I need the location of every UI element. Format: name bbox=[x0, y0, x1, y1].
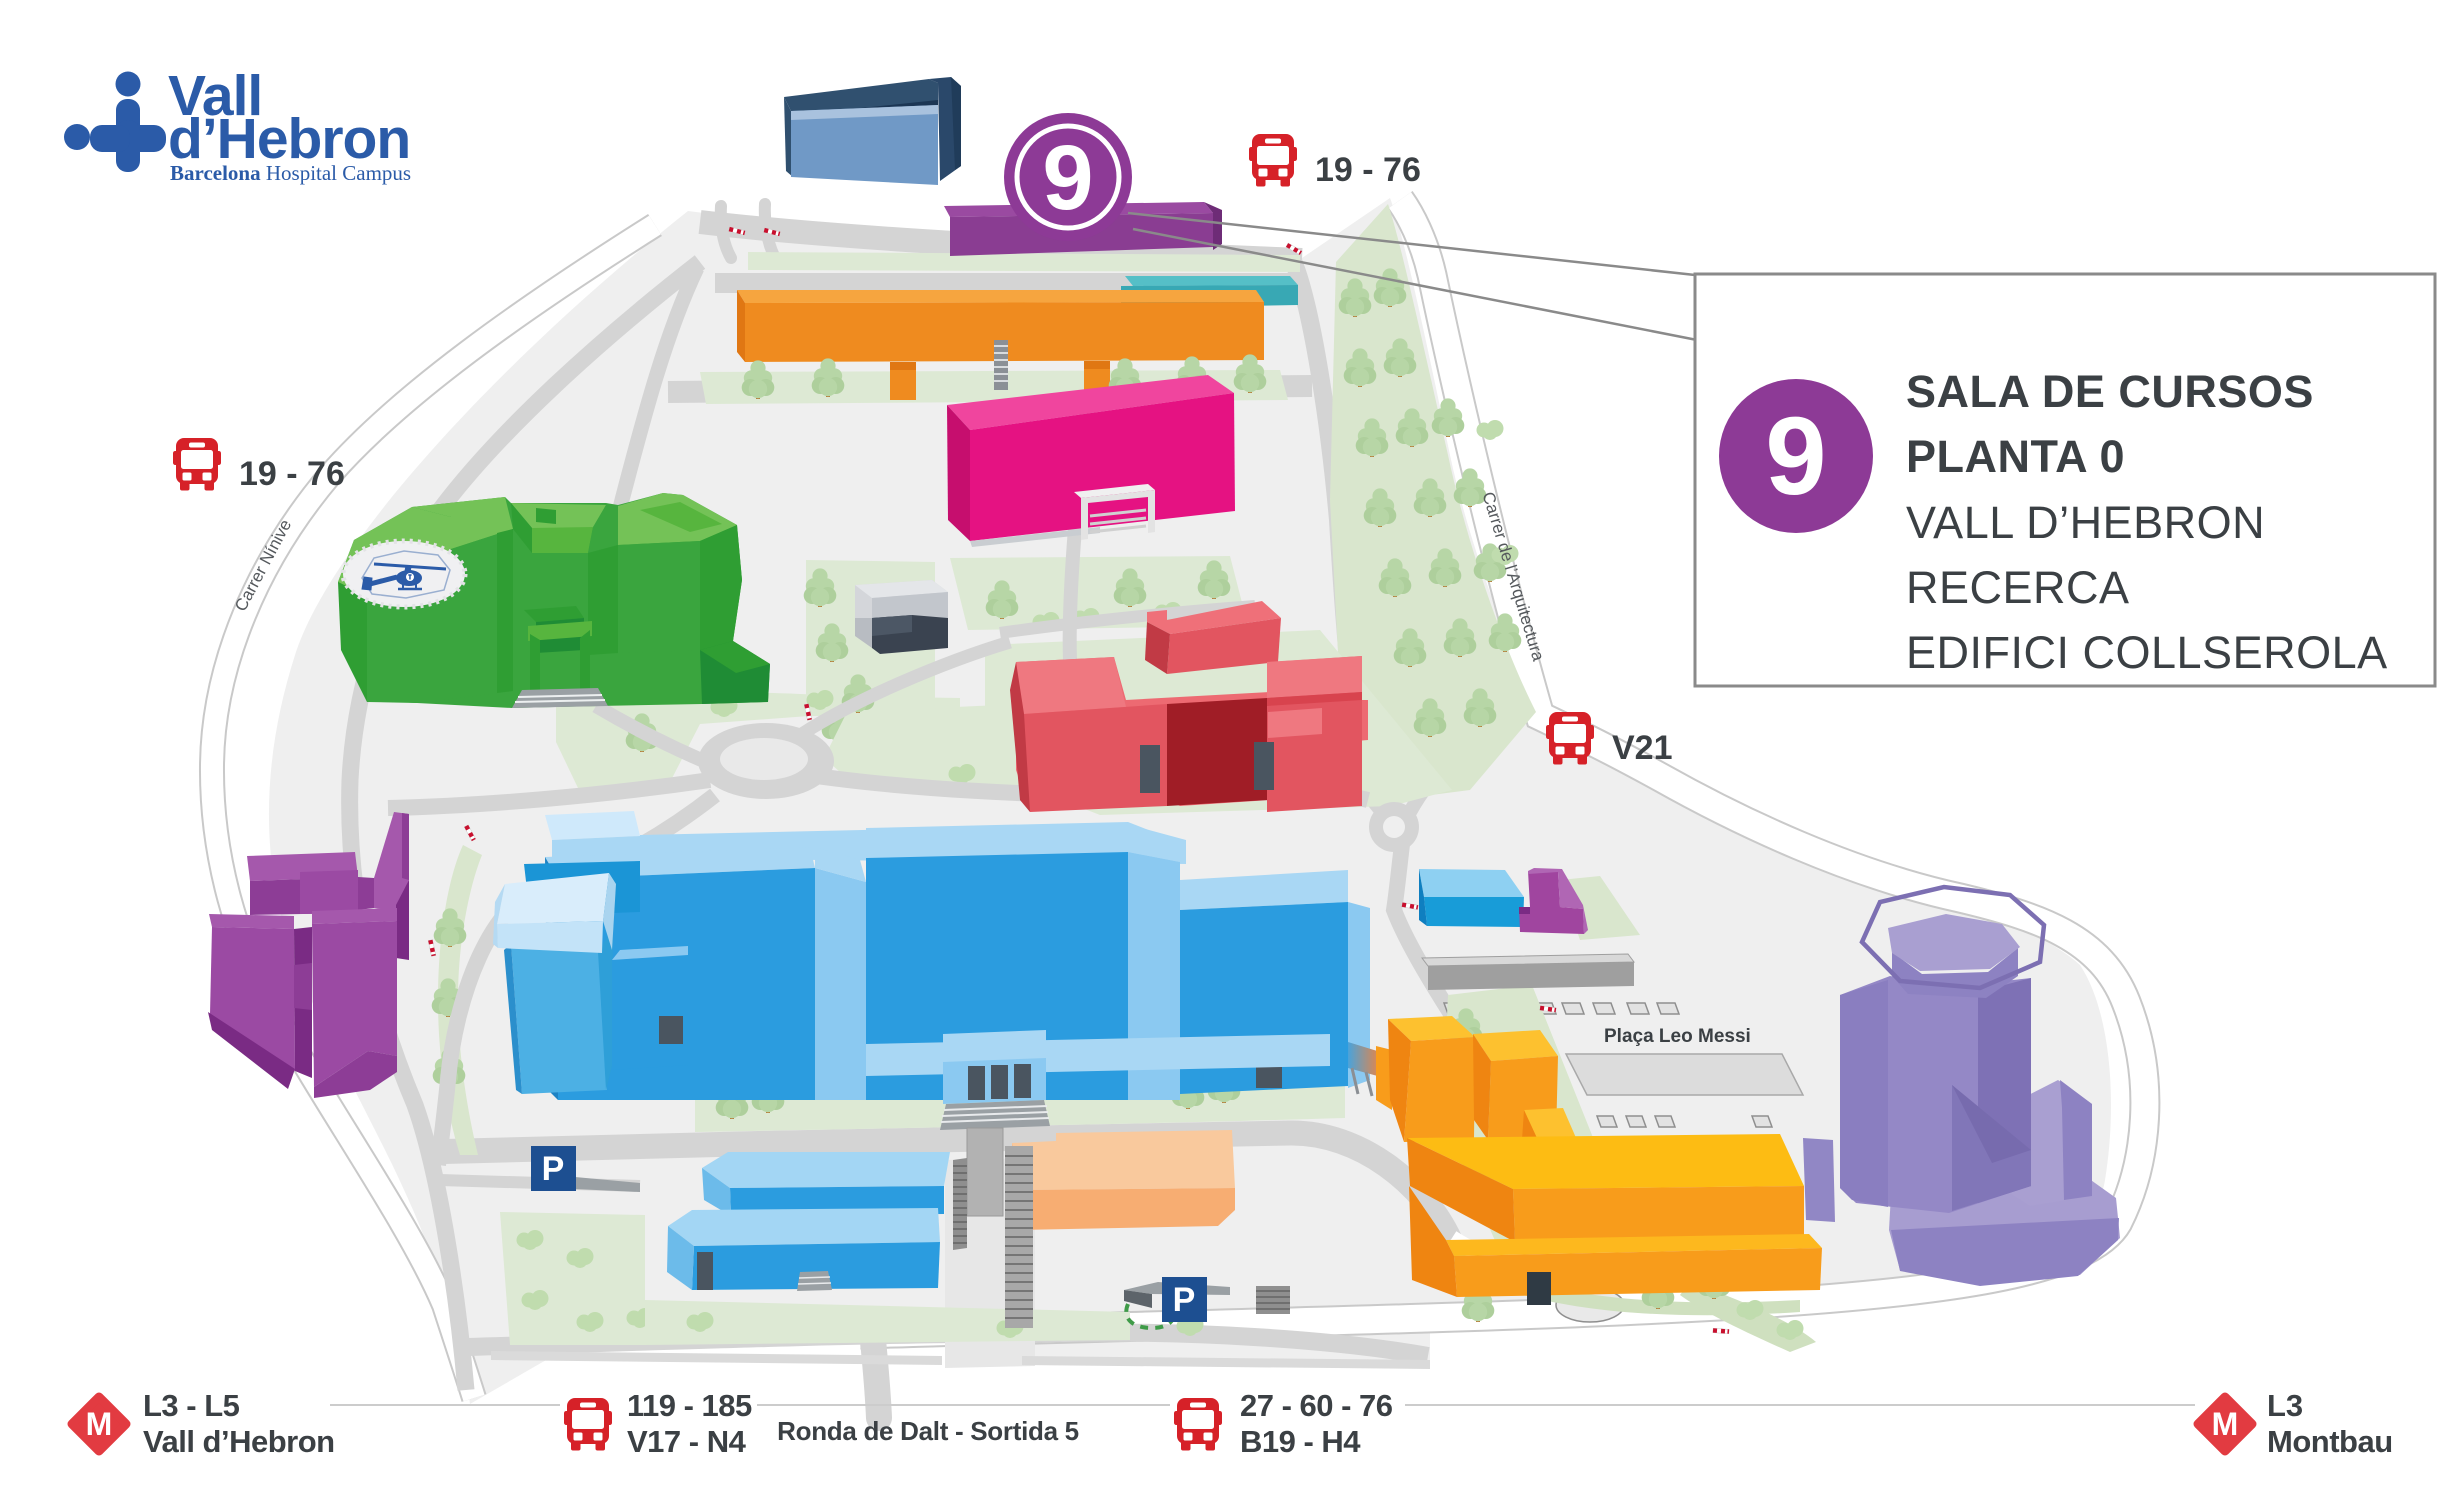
svg-text:V17 - N4: V17 - N4 bbox=[627, 1424, 747, 1459]
svg-text:SALA DE CURSOS: SALA DE CURSOS bbox=[1906, 366, 2314, 417]
svg-text:19 - 76: 19 - 76 bbox=[239, 455, 345, 493]
svg-text:L3: L3 bbox=[2267, 1388, 2303, 1423]
svg-text:B19 - H4: B19 - H4 bbox=[1240, 1424, 1361, 1459]
svg-text:L3 - L5: L3 - L5 bbox=[143, 1388, 240, 1423]
svg-text:RECERCA: RECERCA bbox=[1906, 562, 2130, 613]
svg-text:27 - 60 - 76: 27 - 60 - 76 bbox=[1240, 1388, 1393, 1423]
svg-text:V21: V21 bbox=[1612, 729, 1673, 767]
svg-text:Plaça Leo Messi: Plaça Leo Messi bbox=[1604, 1026, 1751, 1047]
svg-text:Vall d’Hebron: Vall d’Hebron bbox=[143, 1424, 335, 1459]
svg-text:Barcelona Hospital Campus: Barcelona Hospital Campus bbox=[170, 161, 411, 185]
svg-text:Montbau: Montbau bbox=[2267, 1424, 2393, 1459]
svg-text:Ronda de Dalt - Sortida 5: Ronda de Dalt - Sortida 5 bbox=[777, 1416, 1079, 1446]
svg-text:VALL D’HEBRON: VALL D’HEBRON bbox=[1906, 497, 2265, 548]
svg-text:9: 9 bbox=[1765, 395, 1826, 518]
svg-text:PLANTA 0: PLANTA 0 bbox=[1906, 431, 2125, 482]
svg-text:119 - 185: 119 - 185 bbox=[627, 1388, 752, 1423]
svg-text:EDIFICI COLLSEROLA: EDIFICI COLLSEROLA bbox=[1906, 627, 2388, 678]
svg-text:19 - 76: 19 - 76 bbox=[1315, 151, 1421, 189]
svg-text:9: 9 bbox=[1042, 127, 1093, 229]
